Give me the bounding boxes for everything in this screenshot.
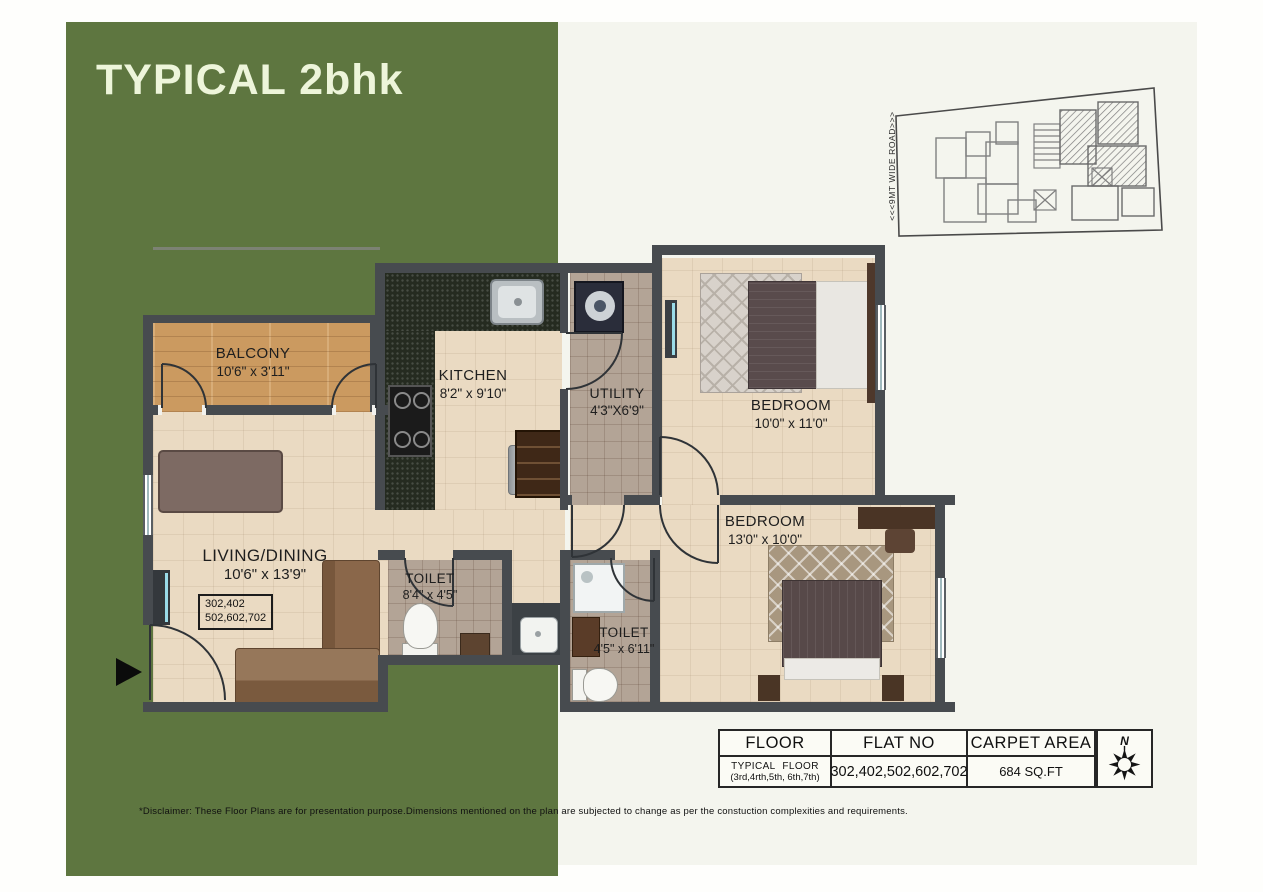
toilet1-bowl <box>403 603 438 649</box>
bedroom1-wall-unit <box>665 300 677 358</box>
room-label-balcony: BALCONY 10'6" x 3'11" <box>173 345 333 381</box>
room-label-toilet1: TOILET 8'4" x 4'5" <box>360 571 500 604</box>
compass-box: N <box>1096 729 1153 788</box>
bedroom1-bed-blanket <box>748 281 820 389</box>
compass-icon: N <box>1098 731 1151 786</box>
col-header-carpet-area: CARPET AREA <box>968 731 1094 757</box>
compass-north-label: N <box>1120 734 1129 748</box>
cell-carpet-area: 684 SQ.FT <box>968 757 1094 786</box>
bedroom2-side-table <box>758 675 780 701</box>
washing-machine <box>574 281 624 333</box>
bedroom1-window <box>876 305 886 390</box>
kitchen-utility-divider <box>560 273 568 333</box>
room-label-bedroom1: BEDROOM 10'0" x 11'0" <box>701 397 881 433</box>
col-header-flat-no: FLAT NO <box>832 731 968 757</box>
key-plan-left-wing <box>936 122 1036 222</box>
disclaimer-text: *Disclaimer: These Floor Plans are for p… <box>139 806 908 817</box>
toilet2-bowl <box>583 668 618 702</box>
toilet2-top-wall <box>570 550 615 560</box>
entry-arrow-icon <box>116 658 142 686</box>
mid-wall <box>560 495 572 505</box>
col-header-floor: FLOOR <box>720 731 832 757</box>
toilet2-shower <box>573 563 625 613</box>
dining-table <box>158 450 283 513</box>
kitchen-sink <box>490 279 544 325</box>
bedrooms-divider-wall <box>720 495 955 505</box>
door-jamb <box>158 405 162 415</box>
key-plan-highlighted-flat <box>1060 102 1154 220</box>
door-jamb <box>202 405 206 415</box>
kitchen-utility-top-wall <box>375 263 660 273</box>
toilet1-stool <box>460 633 490 657</box>
bedroom1-bed-sheet <box>816 281 868 389</box>
toilet1-bottom-wall <box>378 655 570 665</box>
kitchen-left-wall <box>375 263 385 510</box>
south-wall <box>560 702 955 712</box>
bedroom2-chair <box>885 529 915 553</box>
cell-floor: TYPICAL FLOOR (3rd,4rth,5th, 6th,7th) <box>720 757 832 786</box>
mid-wall <box>624 495 660 505</box>
door-jamb <box>372 405 376 415</box>
bedroom2-window <box>936 578 946 658</box>
road-label: <<<9MT WIDE ROAD>>> <box>887 101 899 231</box>
living-bottom-wall <box>143 702 388 712</box>
page-title: TYPICAL 2bhk <box>96 56 403 105</box>
room-label-bedroom2: BEDROOM 13'0" x 10'0" <box>675 513 855 549</box>
floor-plan: BALCONY 10'6" x 3'11" KITCHEN 8'2" x 9'1… <box>140 245 955 715</box>
bedroom2-bed-blanket <box>782 580 882 667</box>
toilet1-right-wall <box>502 550 512 665</box>
flat-numbers-box: 302,402 502,602,702 <box>198 594 273 630</box>
living-window <box>143 475 153 535</box>
cell-flat-no: 302,402,502,602,702 <box>832 757 968 786</box>
room-label-toilet2: TOILET 4'5" x 6'11" <box>554 625 694 658</box>
sofa-long <box>235 648 380 707</box>
utility-bedroom1-wall <box>652 255 662 497</box>
bedroom2-bed-sheet <box>784 658 880 680</box>
key-plan-stair <box>1034 124 1060 168</box>
room-label-living: LIVING/DINING 10'6" x 13'9" <box>165 545 365 585</box>
balcony-parapet <box>143 315 382 323</box>
door-jamb <box>332 405 336 415</box>
key-plan <box>876 84 1168 242</box>
living-cabinet <box>515 430 565 498</box>
balcony-left-wall <box>143 315 153 412</box>
room-label-utility: UTILITY 4'3"X6'9" <box>557 385 677 419</box>
spec-table: FLOOR FLAT NO CARPET AREA TYPICAL FLOOR … <box>718 729 1096 788</box>
poster-page: TYPICAL 2bhk <box>0 0 1263 892</box>
bedroom2-side-table <box>882 675 904 701</box>
bedroom1-top-wall <box>652 245 885 255</box>
key-plan-drawing <box>876 84 1168 242</box>
room-label-kitchen: KITCHEN 8'2" x 9'10" <box>393 367 553 403</box>
bedroom2-desk <box>858 507 940 529</box>
toilet1-top-wall <box>378 550 405 560</box>
balcony-shade-line <box>153 247 380 250</box>
balcony-living-wall <box>206 405 332 415</box>
